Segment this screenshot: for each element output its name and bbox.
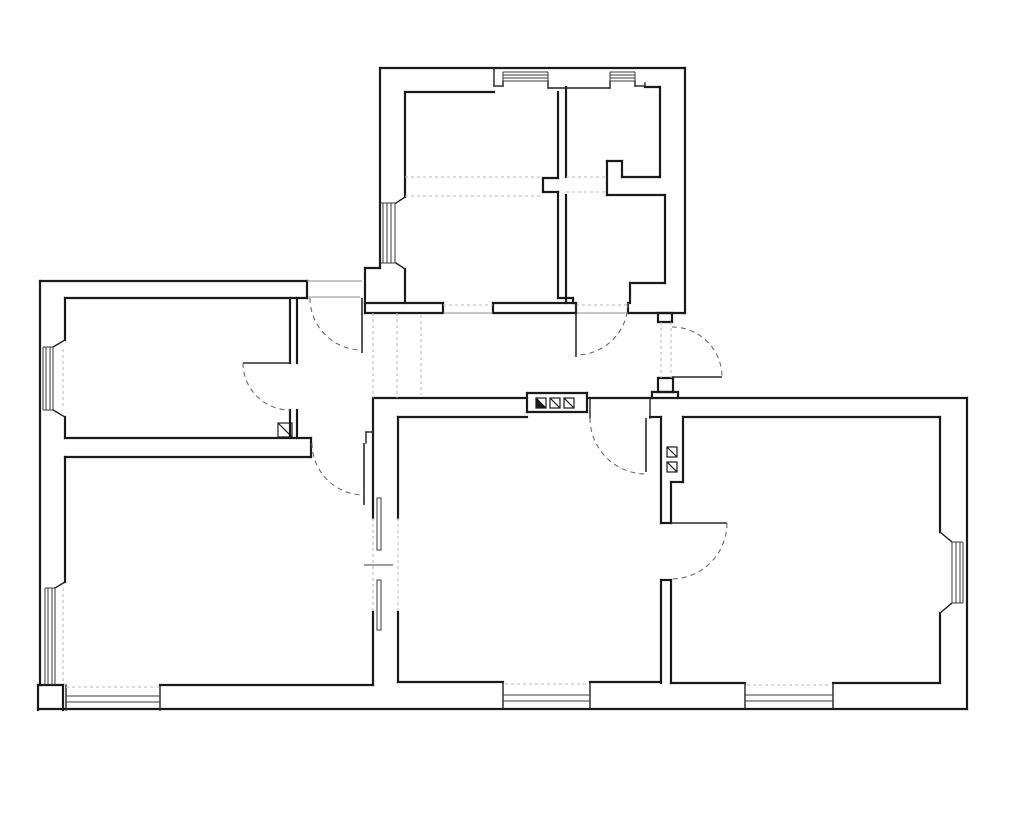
door-swing-arc: [671, 523, 727, 579]
door-swing-arc: [310, 298, 362, 350]
flue-symbol-diagonal: [667, 462, 677, 472]
reference-dashed-lines: [63, 177, 831, 687]
door-swing-arc: [576, 303, 628, 355]
door-swing-arcs: [243, 298, 727, 579]
wall-detail-lines: [53, 68, 952, 710]
window-slot: [377, 498, 381, 550]
door-swing-arc: [590, 418, 646, 474]
door-leaf-lines: [243, 298, 727, 523]
flue-symbol-diagonal: [667, 447, 677, 457]
door-swing-arc: [672, 327, 722, 377]
window-slot: [377, 580, 381, 630]
flue-symbol-diagonal: [550, 398, 560, 408]
wall-opening-window-slots: [377, 498, 381, 630]
flue-symbols: [278, 398, 677, 472]
window-lines: [43, 72, 963, 702]
door-swing-arc: [243, 363, 290, 410]
floor-plan-canvas: [0, 0, 1024, 820]
threshold-lines: [307, 281, 628, 313]
wall-lines: [38, 68, 967, 710]
floor-plan-drawing: [0, 0, 1024, 820]
door-swing-arc: [312, 443, 364, 495]
flue-symbol-diagonal: [564, 398, 574, 408]
